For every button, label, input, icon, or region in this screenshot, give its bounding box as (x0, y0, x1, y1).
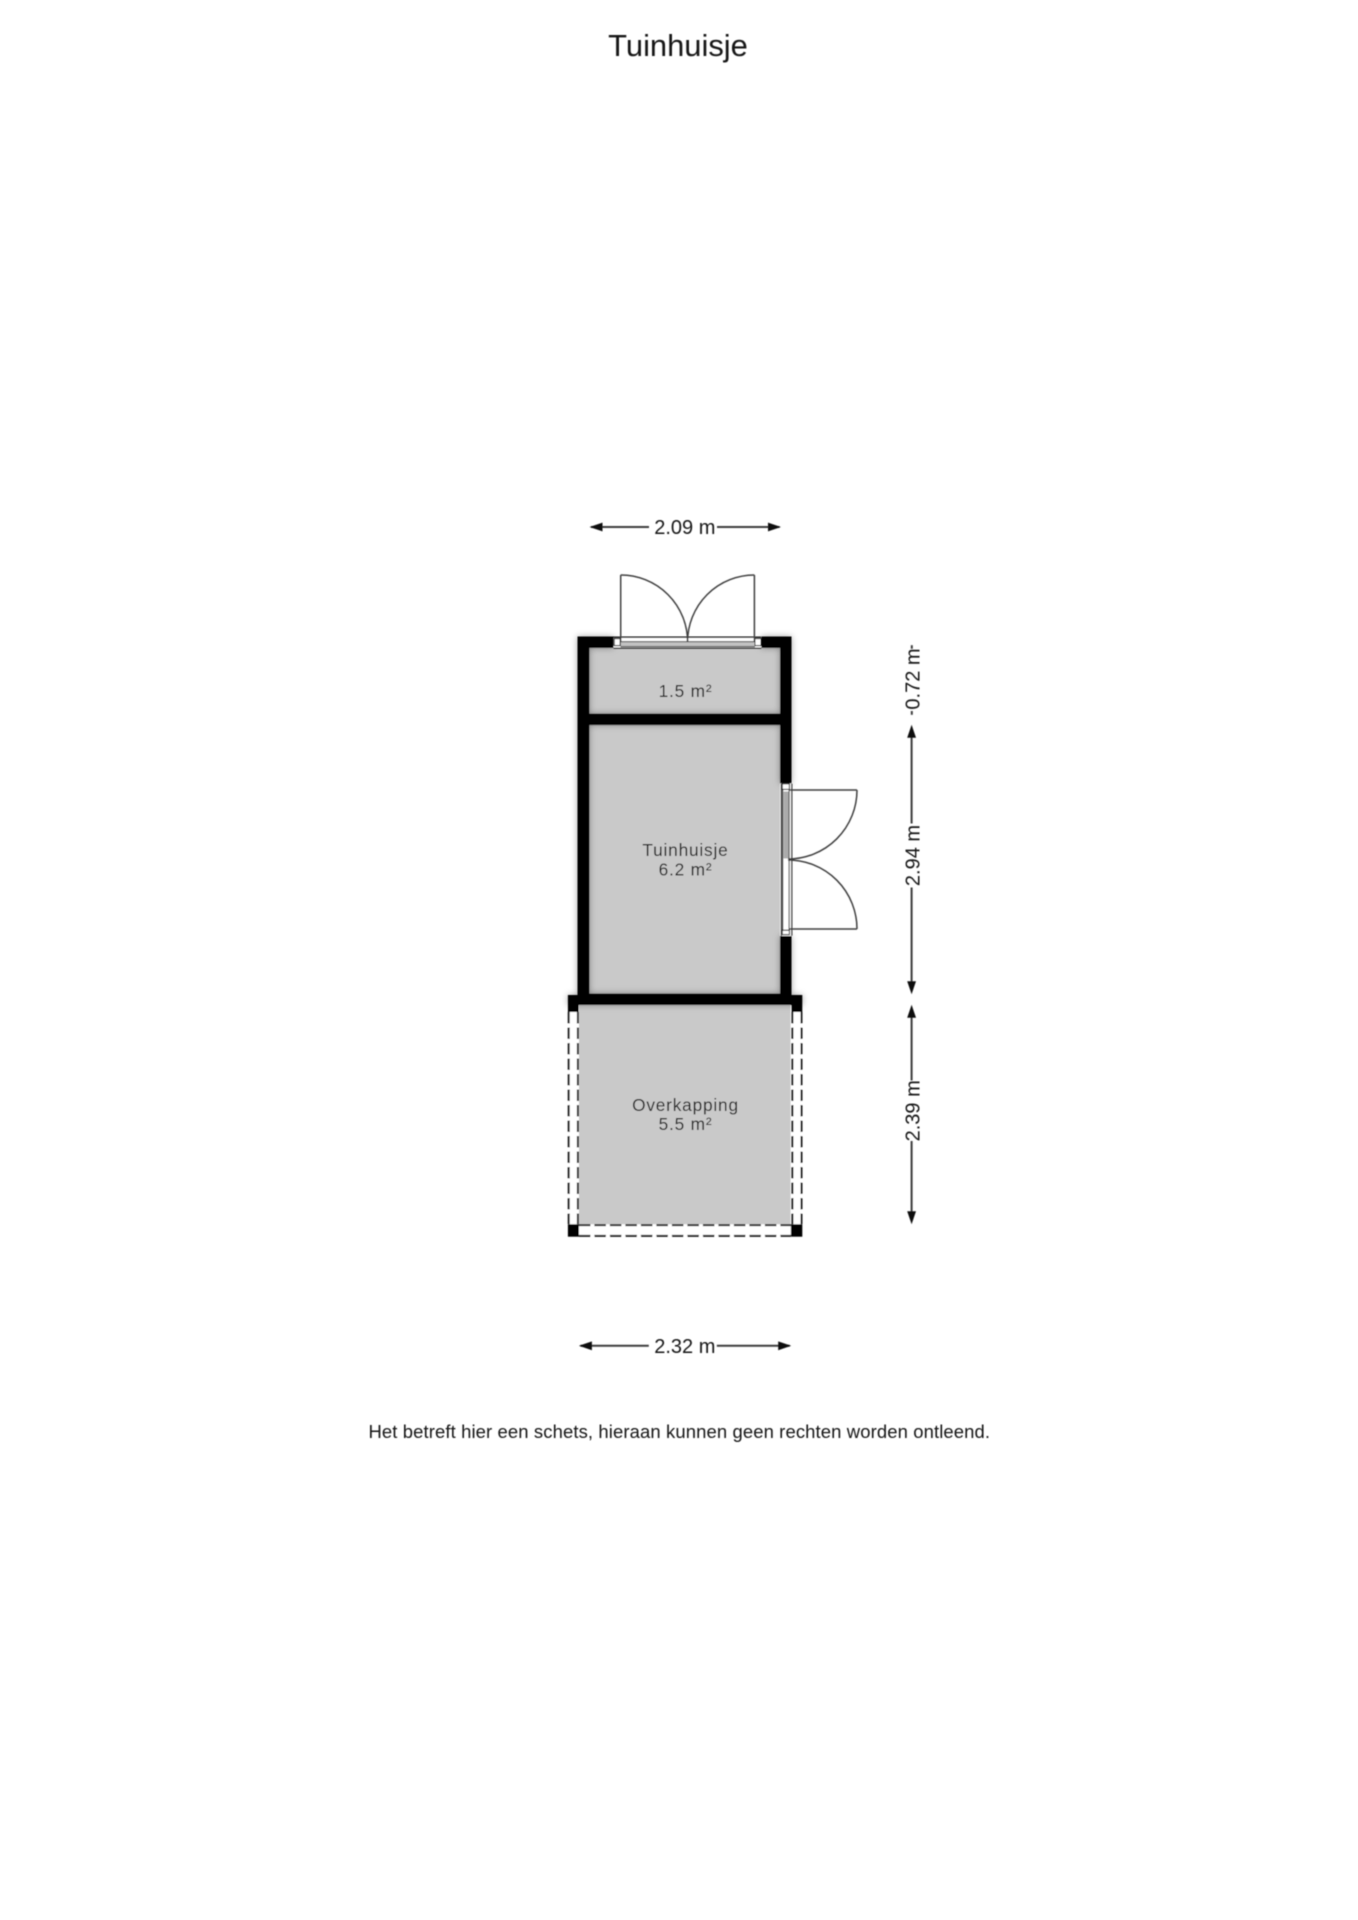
svg-text:2.39 m: 2.39 m (902, 1080, 924, 1141)
svg-text:1.5 m²: 1.5 m² (659, 681, 713, 701)
svg-text:6.2 m²: 6.2 m² (659, 860, 713, 880)
svg-text:Tuinhuisje: Tuinhuisje (608, 28, 748, 63)
svg-text:2.94 m: 2.94 m (902, 825, 924, 886)
svg-text:2.32 m: 2.32 m (654, 1336, 715, 1358)
svg-text:0.72 m: 0.72 m (902, 648, 924, 709)
svg-text:5.5 m²: 5.5 m² (659, 1114, 713, 1134)
svg-text:2.09 m: 2.09 m (654, 517, 715, 539)
svg-text:Overkapping: Overkapping (632, 1095, 739, 1115)
svg-text:Het betreft hier een schets, h: Het betreft hier een schets, hieraan kun… (368, 1421, 990, 1442)
svg-text:Tuinhuisje: Tuinhuisje (642, 840, 728, 860)
